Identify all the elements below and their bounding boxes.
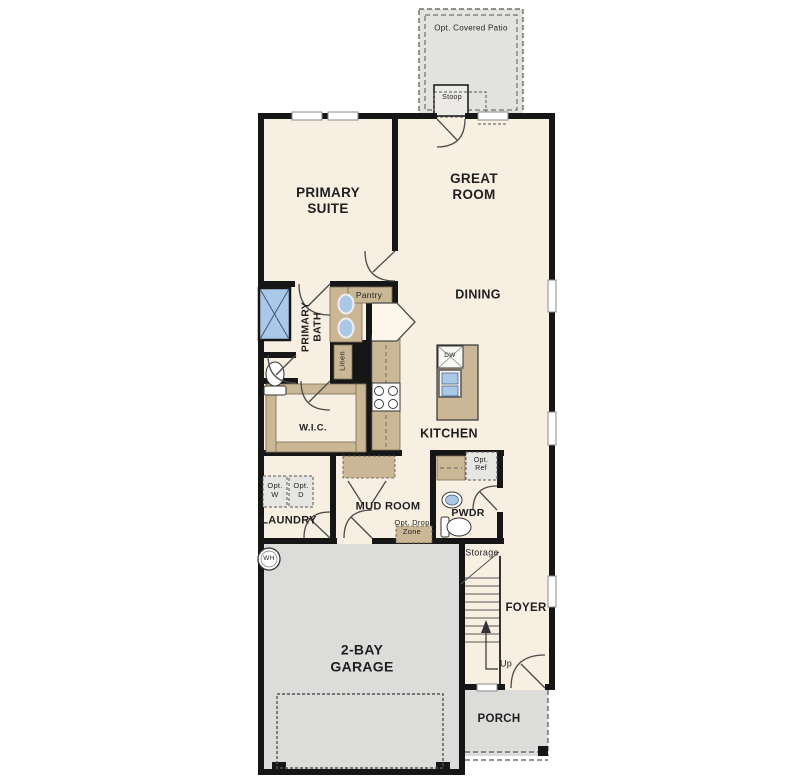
room-label-pwdr: PWDR bbox=[451, 507, 484, 519]
vanity-sink bbox=[339, 295, 354, 314]
room-label-opt-covered-patio: Opt. Covered Patio bbox=[434, 23, 507, 32]
stove bbox=[372, 383, 400, 411]
room-label-primary-bath: PRIMARY BATH bbox=[300, 302, 325, 352]
label-linen: Linen bbox=[339, 351, 348, 371]
island-sink bbox=[439, 370, 461, 397]
room-label-foyer: FOYER bbox=[505, 602, 546, 616]
room-label-stoop: Stoop bbox=[442, 94, 462, 102]
room-label-mud-room: MUD ROOM bbox=[356, 501, 421, 514]
label-up: Up bbox=[500, 659, 512, 670]
window bbox=[477, 684, 497, 691]
label-opt-washer: Opt. W bbox=[267, 482, 282, 500]
room-label-kitchen: KITCHEN bbox=[420, 427, 478, 442]
floor-plan: Opt. Covered Patio Stoop PRIMARY SUITE G… bbox=[0, 0, 810, 779]
room-label-dining: DINING bbox=[455, 288, 501, 303]
label-dishwasher: DW bbox=[444, 352, 455, 360]
wic-shelf bbox=[356, 384, 366, 452]
window bbox=[328, 112, 358, 120]
room-label-great-room: GREAT ROOM bbox=[450, 171, 498, 203]
label-pantry: Pantry bbox=[356, 290, 382, 300]
toilet-pwdr bbox=[441, 517, 471, 537]
label-water-heater: WH bbox=[263, 555, 274, 563]
window bbox=[292, 112, 322, 120]
wic-shelf bbox=[266, 442, 366, 452]
label-opt-dryer: Opt. D bbox=[293, 482, 308, 500]
vanity-sink bbox=[339, 319, 354, 338]
label-opt-ref: Opt. Ref bbox=[474, 457, 488, 474]
window bbox=[478, 112, 508, 120]
window bbox=[548, 576, 556, 607]
room-label-porch: PORCH bbox=[477, 713, 520, 727]
room-label-garage: 2-BAY GARAGE bbox=[330, 641, 393, 674]
room-label-laundry: LAUNDRY bbox=[261, 515, 316, 528]
mudroom-bench bbox=[343, 456, 395, 478]
window bbox=[548, 280, 556, 312]
floor-plan-linework bbox=[0, 0, 810, 779]
room-label-wic: W.I.C. bbox=[299, 422, 327, 433]
toilet-bath bbox=[264, 362, 286, 395]
room-label-storage: Storage bbox=[465, 548, 499, 559]
window bbox=[548, 412, 556, 445]
room-label-primary-suite: PRIMARY SUITE bbox=[296, 185, 360, 217]
label-opt-drop-zone: Opt. Drop Zone bbox=[394, 519, 429, 537]
